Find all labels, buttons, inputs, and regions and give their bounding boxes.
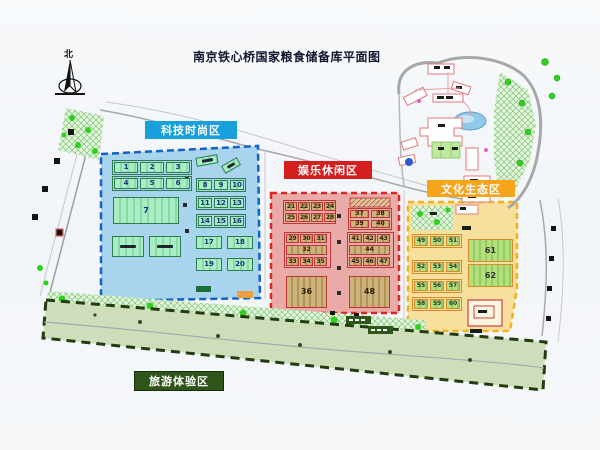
zone-block-51[interactable]: 51 <box>446 236 460 246</box>
svg-text:北: 北 <box>64 48 73 60</box>
zone-block-8[interactable]: 8 <box>198 180 212 190</box>
zone-block-11[interactable]: 11 <box>198 198 212 208</box>
zone-block-53[interactable]: 53 <box>430 262 444 272</box>
zone-block-5[interactable]: 5 <box>140 178 164 189</box>
zone-block-47[interactable]: 47 <box>377 257 390 266</box>
zone-block-38[interactable]: 38 <box>371 210 390 218</box>
zone-block-7[interactable]: 7 <box>113 197 179 224</box>
zone-block-48[interactable]: 48 <box>349 276 390 308</box>
fun-zone-label[interactable]: 娱乐休闲区 <box>284 161 372 179</box>
zone-block-50[interactable]: 50 <box>430 236 444 246</box>
zone-block-14[interactable]: 14 <box>198 216 212 226</box>
zone-block-19[interactable]: 19 <box>196 258 222 271</box>
zone-block-59[interactable]: 59 <box>430 299 444 309</box>
zone-block-28[interactable]: 28 <box>324 213 336 222</box>
zone-block-41[interactable]: 41 <box>349 234 362 243</box>
zone-block[interactable] <box>149 236 181 257</box>
zone-block-34[interactable]: 34 <box>300 257 313 266</box>
zone-block-44[interactable]: 44 <box>349 245 390 255</box>
zone-block-27[interactable]: 27 <box>311 213 323 222</box>
zone-block-4[interactable]: 4 <box>114 178 138 189</box>
zone-block-17[interactable]: 17 <box>196 236 222 249</box>
zone-block-40[interactable]: 40 <box>371 220 390 228</box>
zone-block-26[interactable]: 26 <box>298 213 310 222</box>
zone-block-12[interactable]: 12 <box>214 198 228 208</box>
zone-block-32[interactable]: 32 <box>286 245 327 255</box>
zone-block-10[interactable]: 10 <box>230 180 244 190</box>
culture-zone-label[interactable]: 文化生态区 <box>427 180 515 197</box>
zone-block-23[interactable]: 23 <box>311 202 323 211</box>
zone-block-1[interactable]: 1 <box>114 162 138 173</box>
zone-block-25[interactable]: 25 <box>285 213 297 222</box>
zone-block-60[interactable]: 60 <box>446 299 460 309</box>
zone-block-30[interactable]: 30 <box>300 234 313 243</box>
zone-block-31[interactable]: 31 <box>314 234 327 243</box>
zone-block-35[interactable]: 35 <box>314 257 327 266</box>
zone-block-36[interactable]: 36 <box>286 276 327 308</box>
parking-icon <box>405 158 413 166</box>
plan-title: 南京铁心桥国家粮食储备库平面图 <box>193 48 393 65</box>
zone-block-21[interactable]: 21 <box>285 202 297 211</box>
zone-block-54[interactable]: 54 <box>446 262 460 272</box>
zone-block-56[interactable]: 56 <box>430 281 444 291</box>
zone-block-45[interactable]: 45 <box>349 257 362 266</box>
zone-block-39[interactable]: 39 <box>350 220 369 228</box>
zone-block-46[interactable]: 46 <box>363 257 376 266</box>
zone-block-49[interactable]: 49 <box>414 236 428 246</box>
zone-block-42[interactable]: 42 <box>363 234 376 243</box>
fun-zone-hatch-block <box>350 198 390 207</box>
zone-block-57[interactable]: 57 <box>446 281 460 291</box>
zone-block-15[interactable]: 15 <box>214 216 228 226</box>
zone-block-2[interactable]: 2 <box>140 162 164 173</box>
zone-block-43[interactable]: 43 <box>377 234 390 243</box>
zone-block-9[interactable]: 9 <box>214 180 228 190</box>
zone-block-62[interactable]: 62 <box>468 264 513 287</box>
compass-icon: 北 <box>55 48 85 94</box>
tour-zone-label[interactable]: 旅游体验区 <box>134 371 224 391</box>
zone-block-24[interactable]: 24 <box>324 202 336 211</box>
zone-block-61[interactable]: 61 <box>468 239 513 262</box>
zone-block[interactable] <box>112 236 144 257</box>
zone-block-16[interactable]: 16 <box>230 216 244 226</box>
zone-block-18[interactable]: 18 <box>227 236 253 249</box>
zone-block-22[interactable]: 22 <box>298 202 310 211</box>
site-plan: 北 南京铁心桥国家粮食储备库平面图 科技时尚区 娱乐休闲区 文化生态区 旅游体验… <box>0 0 600 450</box>
zone-block-20[interactable]: 20 <box>227 258 253 271</box>
zone-block-3[interactable]: 3 <box>166 162 190 173</box>
zone-block-55[interactable]: 55 <box>414 281 428 291</box>
zone-block-52[interactable]: 52 <box>414 262 428 272</box>
zone-block-29[interactable]: 29 <box>286 234 299 243</box>
zone-block-6[interactable]: 6 <box>166 178 190 189</box>
zone-block-33[interactable]: 33 <box>286 257 299 266</box>
zone-block-58[interactable]: 58 <box>414 299 428 309</box>
map-graphics: 北 <box>0 0 600 450</box>
tech-zone-label[interactable]: 科技时尚区 <box>145 121 237 139</box>
zone-block-37[interactable]: 37 <box>350 210 369 218</box>
zone-block-13[interactable]: 13 <box>230 198 244 208</box>
